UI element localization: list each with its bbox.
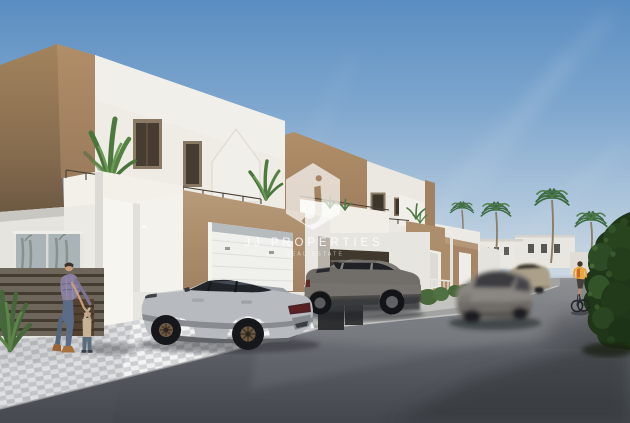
svg-text:REAL ESTATE: REAL ESTATE xyxy=(286,252,344,258)
svg-text:JJ PROPERTIES: JJ PROPERTIES xyxy=(244,237,383,249)
